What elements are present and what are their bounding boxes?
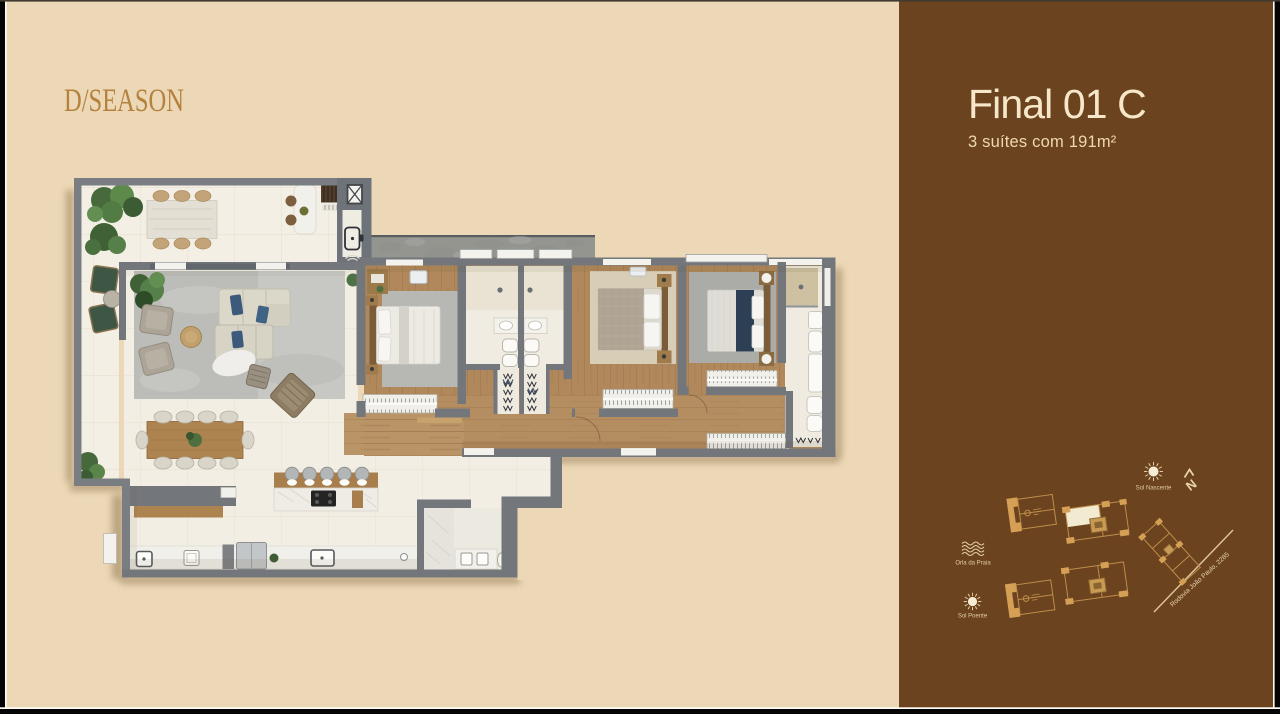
svg-text:D/SEASON: D/SEASON (64, 83, 184, 119)
svg-text:3 suítes com 191m²: 3 suítes com 191m² (968, 133, 1117, 151)
svg-text:Sol Nascente: Sol Nascente (1136, 486, 1172, 492)
svg-text:Final 01 C: Final 01 C (968, 81, 1146, 127)
svg-text:Sol Poente: Sol Poente (958, 614, 988, 620)
svg-text:Orla da Praia: Orla da Praia (955, 561, 991, 567)
